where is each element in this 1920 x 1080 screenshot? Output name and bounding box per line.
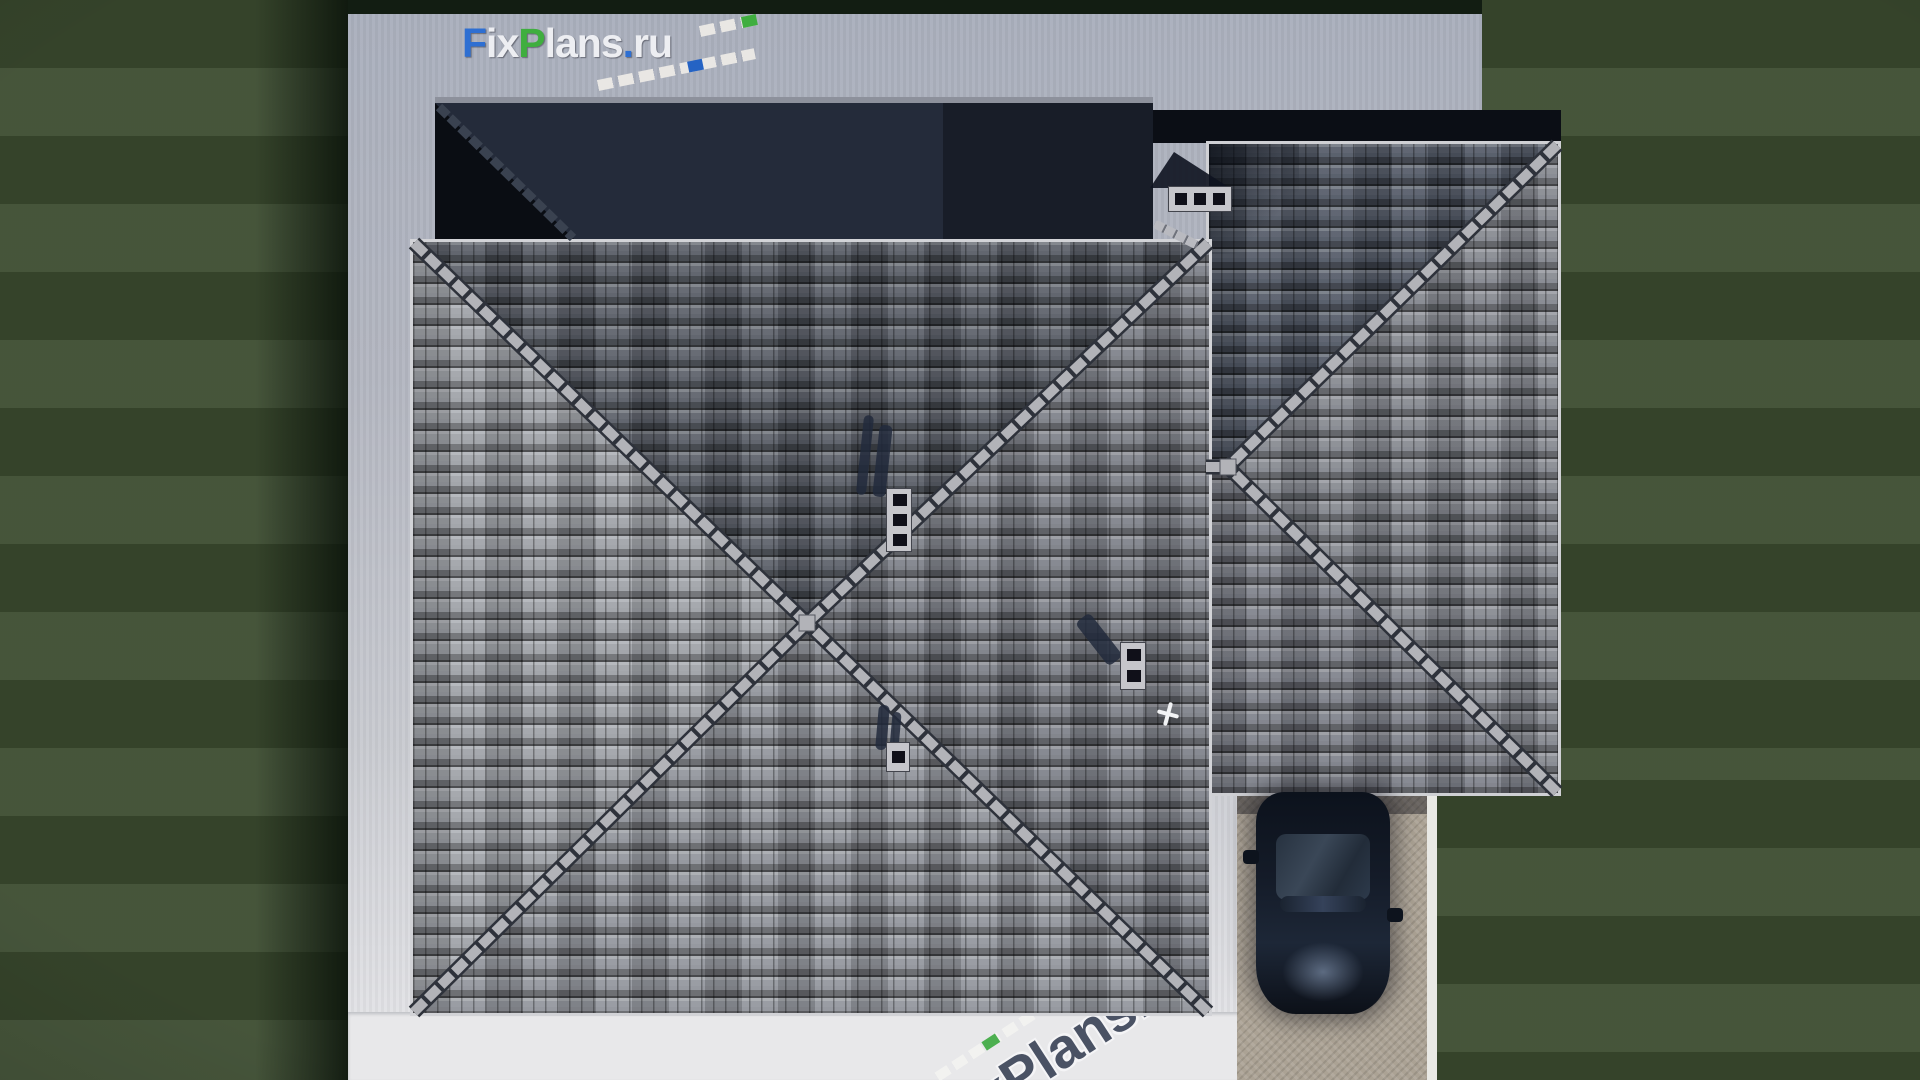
dark-roof-section [435,103,1153,240]
parked-car [1256,792,1390,1014]
chimney-east-face [1120,642,1146,690]
dark-roof-hip-shadow [435,103,575,240]
car-glass-roof [1276,834,1370,900]
lawn-patch-bottom-right [1437,780,1920,1080]
logo-letter-p: P [518,20,544,67]
house-shadow-on-lawn [255,0,350,1080]
render-scene: FixPlans.ru [0,0,1920,1080]
car-mirror-right [1387,908,1403,922]
chimney-south-face [886,742,910,772]
logo-dot: . [623,20,633,67]
car-windshield [1280,896,1366,912]
logo-letters-lans: lans [545,20,623,67]
car-hood-highlight [1282,942,1364,1002]
lawn-stripes-patch [1437,780,1920,1080]
logo-letter-f: F [462,20,486,67]
driveway-curb [1427,792,1437,1080]
logo-letters-ix: ix [486,20,518,67]
chimney-east-wing [1168,186,1232,212]
chimney-north-face [886,488,912,552]
wing-eave-shadow-bar [1153,110,1561,143]
car-mirror-left [1243,850,1259,864]
logo-letters-ru: ru [633,20,672,67]
fixplans-logo: F ix P lans . ru [462,18,672,68]
green-dash [981,1034,1000,1051]
dark-roof-right-shade [943,103,1153,240]
east-wing-roof [1206,141,1561,796]
